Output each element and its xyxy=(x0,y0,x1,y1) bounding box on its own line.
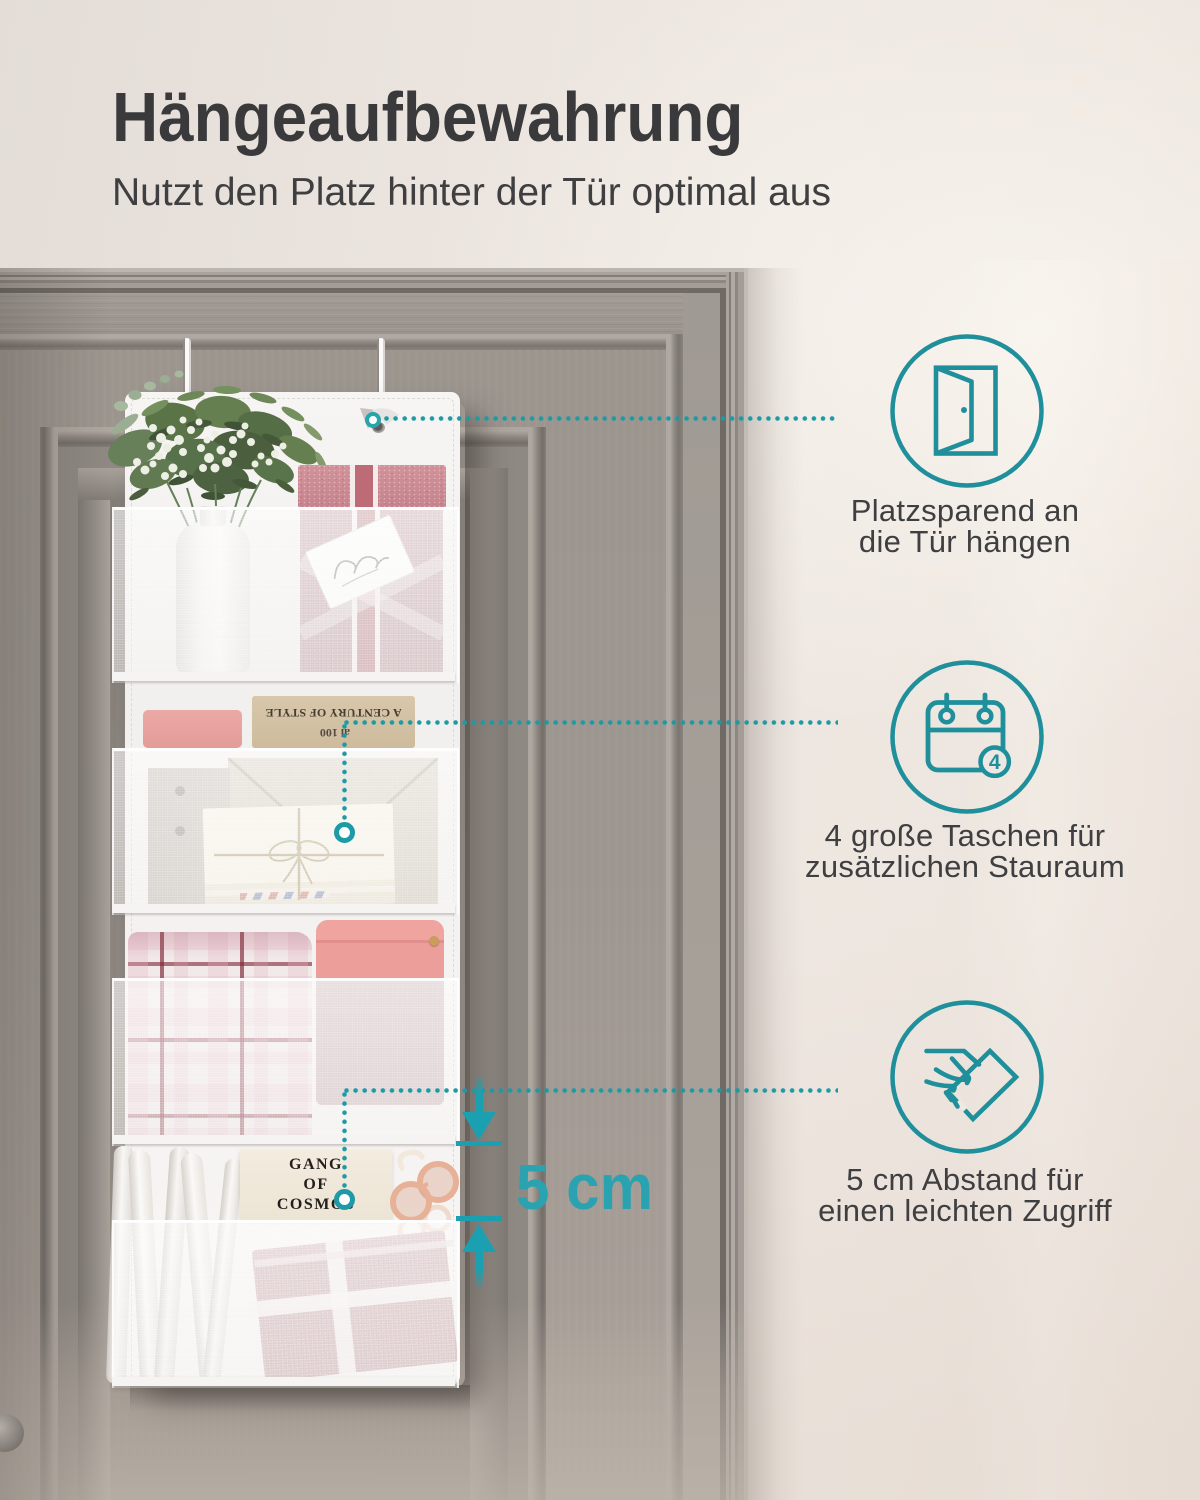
svg-text:4: 4 xyxy=(989,751,1001,774)
